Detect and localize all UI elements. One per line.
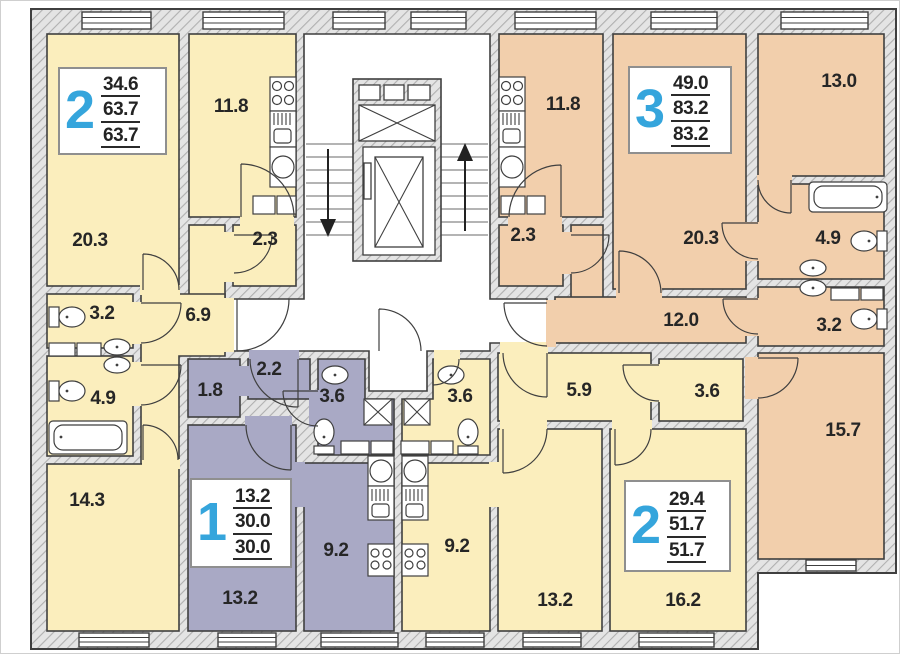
apartment-area-living: 29.4 bbox=[667, 489, 706, 512]
room-area-label-r1_8: 1.8 bbox=[197, 380, 222, 402]
room-area-label-r20_3_left: 20.3 bbox=[72, 230, 107, 252]
room-area-label-r13_2_purple: 13.2 bbox=[222, 588, 257, 610]
room-area-label-r13_2_yellow: 13.2 bbox=[537, 590, 572, 612]
room-area-label-k11_8_tan: 11.8 bbox=[546, 94, 580, 116]
apartment-area-total: 51.7 bbox=[667, 514, 706, 537]
apartment-card-3: 3 49.0 83.2 83.2 bbox=[628, 66, 732, 154]
room-area-label-k11_8_left: 11.8 bbox=[214, 96, 248, 118]
apartment-area-total-2: 30.0 bbox=[233, 537, 272, 560]
apartment-number: 2 bbox=[631, 500, 661, 551]
apartment-area-total: 30.0 bbox=[233, 511, 272, 534]
labels-layer: 2 34.6 63.7 63.7 3 49.0 83.2 83.2 1 13.2… bbox=[1, 1, 900, 654]
room-area-label-e2_3_tan: 2.3 bbox=[510, 225, 535, 247]
room-area-label-r14_3: 14.3 bbox=[69, 490, 104, 512]
room-area-label-c3_6_closet: 3.6 bbox=[694, 381, 719, 403]
room-area-label-r20_3_tan: 20.3 bbox=[683, 228, 718, 250]
apartment-card-1: 1 13.2 30.0 30.0 bbox=[190, 478, 292, 568]
apartment-area-total-2: 63.7 bbox=[101, 125, 140, 148]
apartment-number: 1 bbox=[197, 497, 227, 548]
apartment-area-living: 13.2 bbox=[233, 486, 272, 509]
room-area-label-h6_9: 6.9 bbox=[185, 305, 210, 327]
apartment-area-total-2: 83.2 bbox=[671, 124, 710, 147]
apartment-area-total-2: 51.7 bbox=[667, 540, 706, 563]
floor-plan: 2 34.6 63.7 63.7 3 49.0 83.2 83.2 1 13.2… bbox=[0, 0, 900, 654]
room-area-label-h5_9: 5.9 bbox=[566, 380, 591, 402]
apartment-number: 2 bbox=[65, 85, 95, 136]
room-area-label-e2_3_left: 2.3 bbox=[252, 229, 277, 251]
room-area-label-k9_2_yellow: 9.2 bbox=[444, 536, 469, 558]
apartment-area-total: 83.2 bbox=[671, 98, 710, 121]
room-area-label-b3_6_purple: 3.6 bbox=[319, 386, 344, 408]
room-area-label-wc3_2_tan: 3.2 bbox=[816, 315, 841, 337]
room-area-label-h12_0: 12.0 bbox=[663, 310, 698, 332]
room-area-label-c2_2: 2.2 bbox=[256, 359, 281, 381]
room-area-label-k9_2_purple: 9.2 bbox=[323, 540, 348, 562]
room-area-label-wc3_2_left: 3.2 bbox=[89, 303, 114, 325]
room-area-label-b4_9_left: 4.9 bbox=[90, 388, 115, 410]
apartment-area-total: 63.7 bbox=[101, 99, 140, 122]
room-area-label-r16_2: 16.2 bbox=[665, 590, 700, 612]
apartment-area-living: 49.0 bbox=[671, 73, 710, 96]
room-area-label-r15_7: 15.7 bbox=[825, 420, 860, 442]
room-area-label-b4_9_tan: 4.9 bbox=[815, 228, 840, 250]
apartment-card-2-left: 2 34.6 63.7 63.7 bbox=[58, 67, 167, 155]
apartment-card-2-right: 2 29.4 51.7 51.7 bbox=[624, 480, 731, 572]
apartment-area-living: 34.6 bbox=[101, 74, 140, 97]
room-area-label-b3_6_yellow: 3.6 bbox=[447, 386, 472, 408]
apartment-number: 3 bbox=[635, 84, 665, 135]
room-area-label-r13_0: 13.0 bbox=[821, 71, 856, 93]
